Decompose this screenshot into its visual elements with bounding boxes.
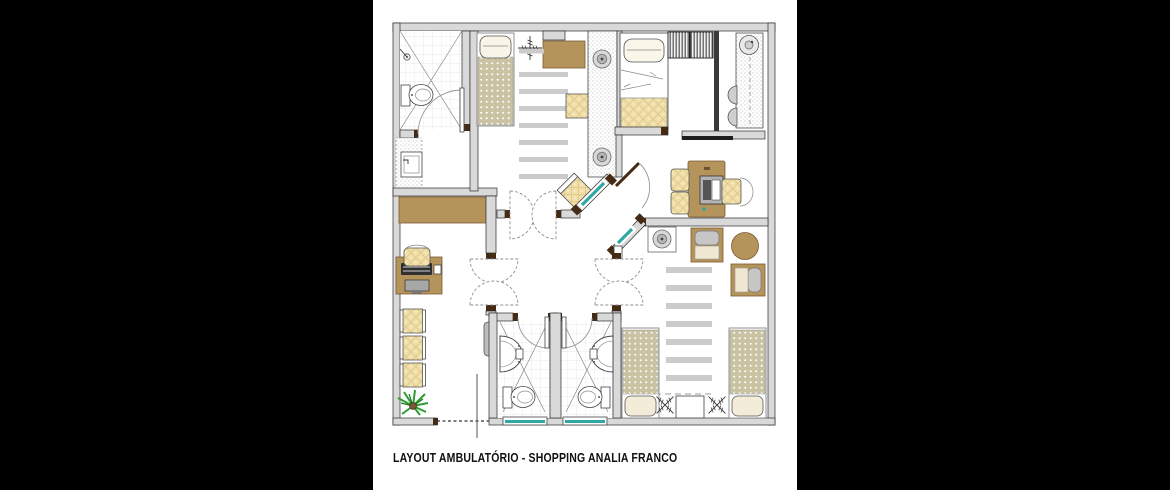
stool-half (728, 86, 737, 104)
room-bedroom (615, 31, 713, 177)
wall-jog (543, 31, 565, 40)
glazed-partition-southeast (607, 213, 646, 260)
right-letterbox (797, 0, 1170, 490)
round-sink-icon (740, 36, 759, 55)
closet-sink (401, 152, 422, 177)
round-stool-icon (593, 148, 611, 166)
plan-caption: LAYOUT AMBULATÓRIO - SHOPPING ANALIA FRA… (393, 451, 677, 465)
kitchenette-divider (714, 31, 719, 131)
wall-reception-north (393, 188, 497, 196)
room-bathroom-top-left (400, 31, 470, 138)
mouse (434, 265, 441, 274)
left-letterbox (0, 0, 373, 490)
wc-block (489, 313, 621, 425)
screenshot-root: LAYOUT AMBULATÓRIO - SHOPPING ANALIA FRA… (0, 0, 1170, 490)
stool-station (648, 227, 676, 252)
wc1-toilet (503, 387, 535, 409)
room-office (640, 161, 768, 226)
stippled-counter-strip (588, 31, 617, 177)
desk-chair (404, 245, 430, 266)
nightstand (676, 396, 704, 418)
floor-stripes (519, 49, 568, 179)
office-chair (671, 192, 689, 214)
armchair (731, 264, 765, 296)
bed (620, 33, 668, 129)
plant-icon (398, 390, 428, 415)
armchair (691, 228, 723, 262)
exam-bed (477, 33, 514, 126)
waiting-chair (400, 363, 426, 387)
office-chair (671, 169, 689, 191)
waiting-chairs (400, 309, 426, 387)
floor-plan-svg (373, 0, 797, 490)
blanket (621, 98, 667, 128)
wc2-toilet (578, 387, 610, 409)
stool-half (728, 108, 737, 126)
ceiling-light-icon (518, 36, 542, 60)
floor-stripes (655, 267, 715, 394)
office-desk (688, 161, 725, 217)
waiting-chair (400, 336, 426, 360)
double-swing-door-hall-east (595, 253, 643, 315)
pillow (624, 39, 664, 62)
side-table (543, 41, 585, 68)
double-swing-door-hall-north (510, 191, 556, 239)
double-swing-door-hall-west (470, 259, 518, 305)
round-table (732, 233, 759, 260)
linen-closet (396, 138, 422, 190)
monitor (405, 280, 429, 291)
room-reception (396, 197, 489, 438)
room-observation (622, 227, 766, 422)
toilet (401, 85, 433, 107)
room-treatment-area (470, 31, 617, 211)
round-stool-icon (593, 50, 611, 68)
waiting-chair (400, 309, 426, 333)
round-stool-icon (653, 230, 671, 248)
reception-counter (399, 197, 489, 223)
observation-bed (729, 328, 766, 418)
observation-bed (622, 328, 659, 418)
office-chair (722, 178, 753, 206)
plan-sheet: LAYOUT AMBULATÓRIO - SHOPPING ANALIA FRA… (373, 0, 797, 490)
